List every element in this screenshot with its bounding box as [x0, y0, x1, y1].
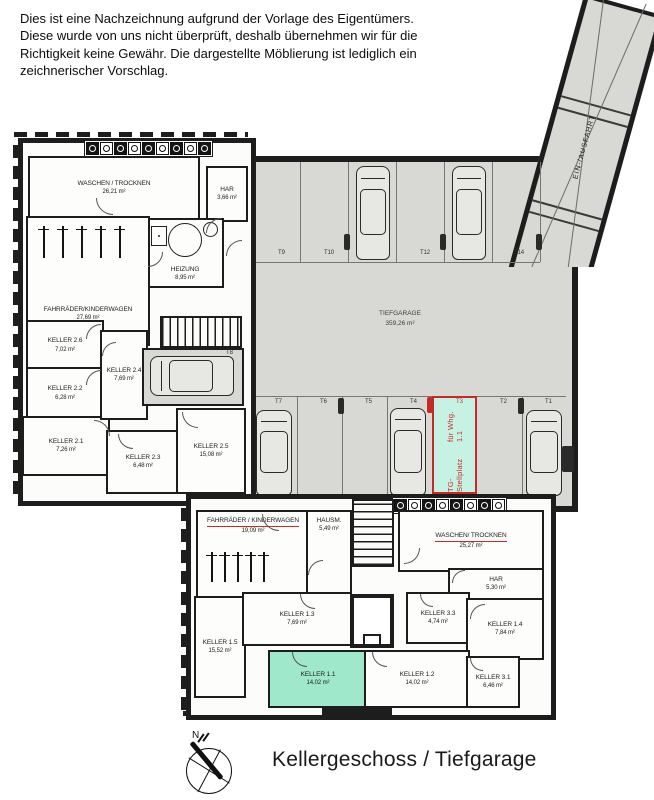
room-area: 3,66 m² — [217, 195, 237, 202]
room-hausmeister: HAUSM. 5,49 m² — [306, 510, 352, 605]
garage-name: TIEFGARAGE — [330, 309, 470, 319]
ramp-label: EIN-/AUSFAHRT — [511, 0, 654, 267]
car-icon — [150, 356, 234, 396]
bike-icon — [76, 226, 87, 258]
compass-rose: N — [184, 738, 238, 796]
washer-icon — [170, 142, 183, 155]
washer-icon — [86, 142, 99, 155]
room-area: 7,02 m² — [55, 347, 75, 354]
car-icon — [452, 166, 486, 260]
pillar-mark — [440, 234, 446, 250]
pillar-mark — [536, 234, 542, 250]
room-name: WASCHEN/ TROCKNEN — [435, 532, 506, 542]
bike-icon — [206, 552, 217, 582]
stall-label: T2 — [500, 399, 507, 405]
stall-label: T5 — [365, 399, 372, 405]
car-icon — [526, 410, 562, 496]
room-name: KELLER 2.4 — [107, 367, 142, 375]
room-area: 7,26 m² — [56, 447, 76, 454]
pillar-mark — [518, 398, 524, 414]
room-keller-2-3: KELLER 2.3 6,48 m² — [106, 430, 180, 494]
stall-label: T6 — [320, 399, 327, 405]
room-area: 4,74 m² — [428, 619, 448, 626]
highlight-label: TG-Stellplatz für Whg. 1.1 — [446, 398, 464, 492]
room-name: KELLER 3.1 — [476, 674, 511, 682]
room-name: KELLER 2.2 — [48, 385, 83, 393]
room-keller-1-1-highlighted: KELLER 1.1 14,02 m² — [268, 650, 368, 708]
room-area: 6,46 m² — [483, 683, 503, 690]
stairs-lower — [352, 499, 394, 567]
room-name: KELLER 1.5 — [203, 639, 238, 647]
room-area: 5,30 m² — [486, 585, 506, 592]
entry-steps — [322, 708, 392, 716]
washer-icon — [114, 142, 127, 155]
stall-divider — [297, 396, 298, 494]
room-area: 15,52 m² — [209, 648, 232, 655]
room-name: KELLER 1.4 — [488, 621, 523, 629]
room-waschen-trocknen-2: WASCHEN / TROCKNEN 26,21 m² — [28, 156, 200, 220]
room-name: KELLER 2.1 — [49, 438, 84, 446]
bike-icon — [114, 226, 125, 258]
bike-icon — [245, 552, 256, 582]
stall-line — [252, 396, 566, 397]
bike-icon — [232, 552, 243, 582]
room-area: 26,21 m² — [103, 189, 126, 196]
room-area: 14,02 m² — [307, 680, 330, 687]
room-name: HAR — [489, 576, 502, 584]
stall-divider — [387, 396, 388, 494]
pillar-mark-red — [427, 397, 433, 413]
room-name: KELLER 3.3 — [421, 610, 456, 618]
room-name: KELLER 1.3 — [280, 611, 315, 619]
elevator-shaft — [350, 594, 394, 648]
floor-plan: EIN-/AUSFAHRT T9 T10 T11 T12 T13 T14 TIE… — [0, 0, 654, 800]
room-area: 7,69 m² — [287, 620, 307, 627]
stall-label: T3 — [456, 399, 463, 405]
bike-icon — [38, 226, 49, 258]
room-keller-3-3: KELLER 3.3 4,74 m² — [406, 592, 470, 644]
room-area: 19,09 m² — [242, 528, 265, 535]
washer-icon — [128, 142, 141, 155]
washer-icon — [142, 142, 155, 155]
highlighted-stall-t3: TG-Stellplatz für Whg. 1.1 — [432, 396, 477, 494]
room-name: HAR — [220, 186, 233, 194]
room-waschen-trocknen-1: WASCHEN/ TROCKNEN 25,27 m² — [398, 510, 544, 572]
room-name: FAHRRÄDER/KINDERWAGEN — [44, 306, 133, 314]
room-name: KELLER 1.2 — [400, 671, 435, 679]
room-keller-1-5: KELLER 1.5 15,52 m² — [194, 596, 246, 698]
stall-label: T4 — [410, 399, 417, 405]
stall-label: T1 — [545, 399, 552, 405]
room-name: FAHRRÄDER / KINDERWAGEN — [207, 517, 299, 527]
stall-divider — [492, 162, 493, 262]
room-area: 14,02 m² — [406, 680, 429, 687]
garage-label: TIEFGARAGE 359,26 m² — [330, 309, 470, 329]
room-area: 6,48 m² — [133, 463, 153, 470]
highlight-line1: TG-Stellplatz — [446, 445, 464, 492]
stall-label: T10 — [324, 250, 334, 256]
wall-niche — [562, 446, 574, 472]
washer-icon — [100, 142, 113, 155]
garage-area-value: 359,26 m² — [330, 319, 470, 329]
room-name: HEIZUNG — [171, 266, 200, 274]
room-name: KELLER 2.5 — [194, 443, 229, 451]
washer-icon — [184, 142, 197, 155]
pillar-mark — [338, 398, 344, 414]
room-name: KELLER 1.1 — [301, 671, 336, 679]
car-icon — [356, 166, 390, 260]
bike-icon — [95, 226, 106, 258]
ramp: EIN-/AUSFAHRT — [506, 0, 654, 267]
stall-divider — [300, 162, 301, 262]
room-area: 25,27 m² — [460, 543, 483, 550]
bike-icon — [219, 552, 230, 582]
room-area: 15,08 m² — [200, 452, 223, 459]
plan-title: Kellergeschoss / Tiefgarage — [272, 748, 537, 772]
car-icon — [256, 410, 292, 496]
sink-icon — [151, 226, 167, 246]
stall-label: T7 — [275, 399, 282, 405]
stall-label: T9 — [278, 250, 285, 256]
room-name: KELLER 2.6 — [48, 337, 83, 345]
room-keller-1-3: KELLER 1.3 7,69 m² — [242, 592, 352, 646]
stall-divider — [396, 162, 397, 262]
washer-icon — [156, 142, 169, 155]
room-name: WASCHEN / TROCKNEN — [78, 180, 151, 188]
room-har-2: HAR 3,66 m² — [206, 166, 248, 222]
room-area: 6,28 m² — [55, 395, 75, 402]
washer-icon — [198, 142, 211, 155]
room-area: 7,84 m² — [495, 630, 515, 637]
room-name: HAUSM. — [317, 517, 342, 525]
stall-label: T12 — [420, 250, 430, 256]
room-area: 5,49 m² — [319, 526, 339, 533]
bike-icon — [57, 226, 68, 258]
room-area: 8,95 m² — [175, 275, 195, 282]
compass-ring — [186, 748, 232, 794]
pillar-mark — [344, 234, 350, 250]
foundation-piers — [14, 132, 248, 137]
boiler-icon — [168, 223, 202, 257]
room-area: 7,69 m² — [114, 376, 134, 383]
stairs-upper — [160, 316, 242, 348]
stall-line — [252, 262, 540, 263]
stall-label: T14 — [514, 250, 524, 256]
room-name: KELLER 2.3 — [126, 454, 161, 462]
washer-row — [84, 140, 213, 157]
bike-icon — [258, 552, 269, 582]
car-icon — [390, 408, 426, 496]
